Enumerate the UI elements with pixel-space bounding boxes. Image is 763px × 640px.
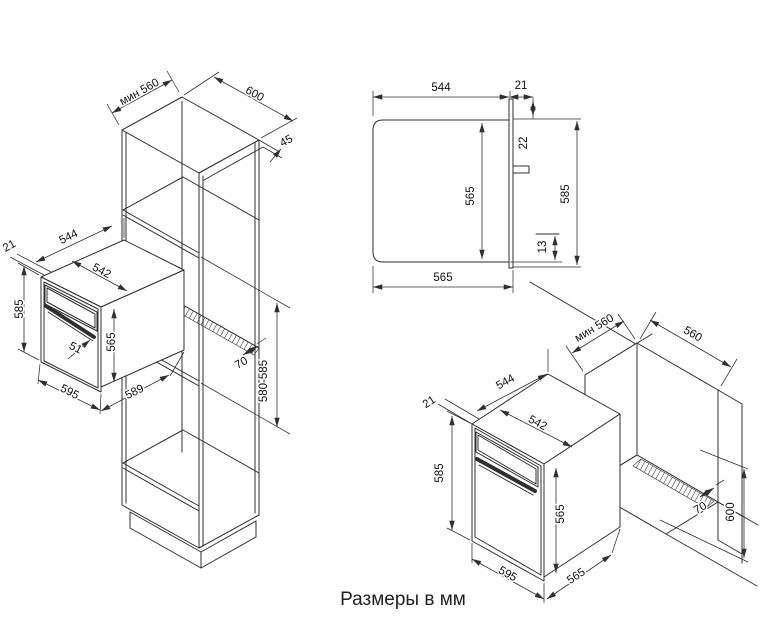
dim-label-column-min-depth: мин 560 [118, 77, 161, 108]
oven-latch-pin [513, 166, 529, 173]
dim-label-side-body-depth: 544 [431, 82, 451, 94]
dim-label-base-niche-height: 600 [725, 502, 737, 521]
dim-label-oven-door-height: 585 [14, 299, 26, 318]
dim-label-side-door-height: 585 [560, 184, 572, 203]
oven-isometric-left [41, 240, 184, 392]
dim-label-side-bottom-overhang: 13 [537, 241, 549, 254]
dim-label-base-door-lip: 21 [421, 394, 438, 411]
dim-label-base-body-height: 565 [555, 504, 567, 523]
dim-label-oven-door-lip: 21 [1, 238, 18, 255]
dim-label-side-overall-depth: 565 [433, 272, 452, 284]
oven-door-side [509, 99, 513, 268]
dim-label-niche-height: 580-585 [258, 360, 270, 402]
dim-label-column-trim: 45 [278, 133, 295, 150]
niche-right-panel [718, 390, 742, 516]
dim-label-side-body-height: 565 [465, 186, 477, 205]
dim-label-oven-overall-depth: 589 [123, 383, 146, 402]
dim-label-side-top-overhang: 22 [518, 137, 530, 150]
dim-label-base-overall-depth: 565 [565, 566, 588, 587]
dim-label-base-door-height: 585 [434, 463, 446, 482]
installation-diagram-page: мин 560 600 45 580-585 70 21 585 544 [0, 0, 763, 640]
dim-label-oven-body-depth: 544 [57, 227, 80, 246]
oven-body-side [373, 120, 510, 262]
dim-label-oven-body-height: 565 [106, 332, 118, 351]
oven-isometric-base [472, 374, 620, 581]
oven-installation-diagram: мин 560 600 45 580-585 70 21 585 544 [0, 0, 763, 640]
dim-label-base-niche-width: 560 [681, 324, 704, 344]
oven-side-view: 544 21 22 565 585 13 565 [373, 80, 581, 293]
dim-label-side-door-thickness: 21 [515, 80, 528, 92]
dim-label-base-body-depth: 544 [494, 372, 517, 392]
dim-label-column-width: 600 [243, 84, 266, 104]
caption-units: Размеры в мм [340, 589, 466, 610]
dim-label-base-door-width: 595 [496, 564, 519, 584]
